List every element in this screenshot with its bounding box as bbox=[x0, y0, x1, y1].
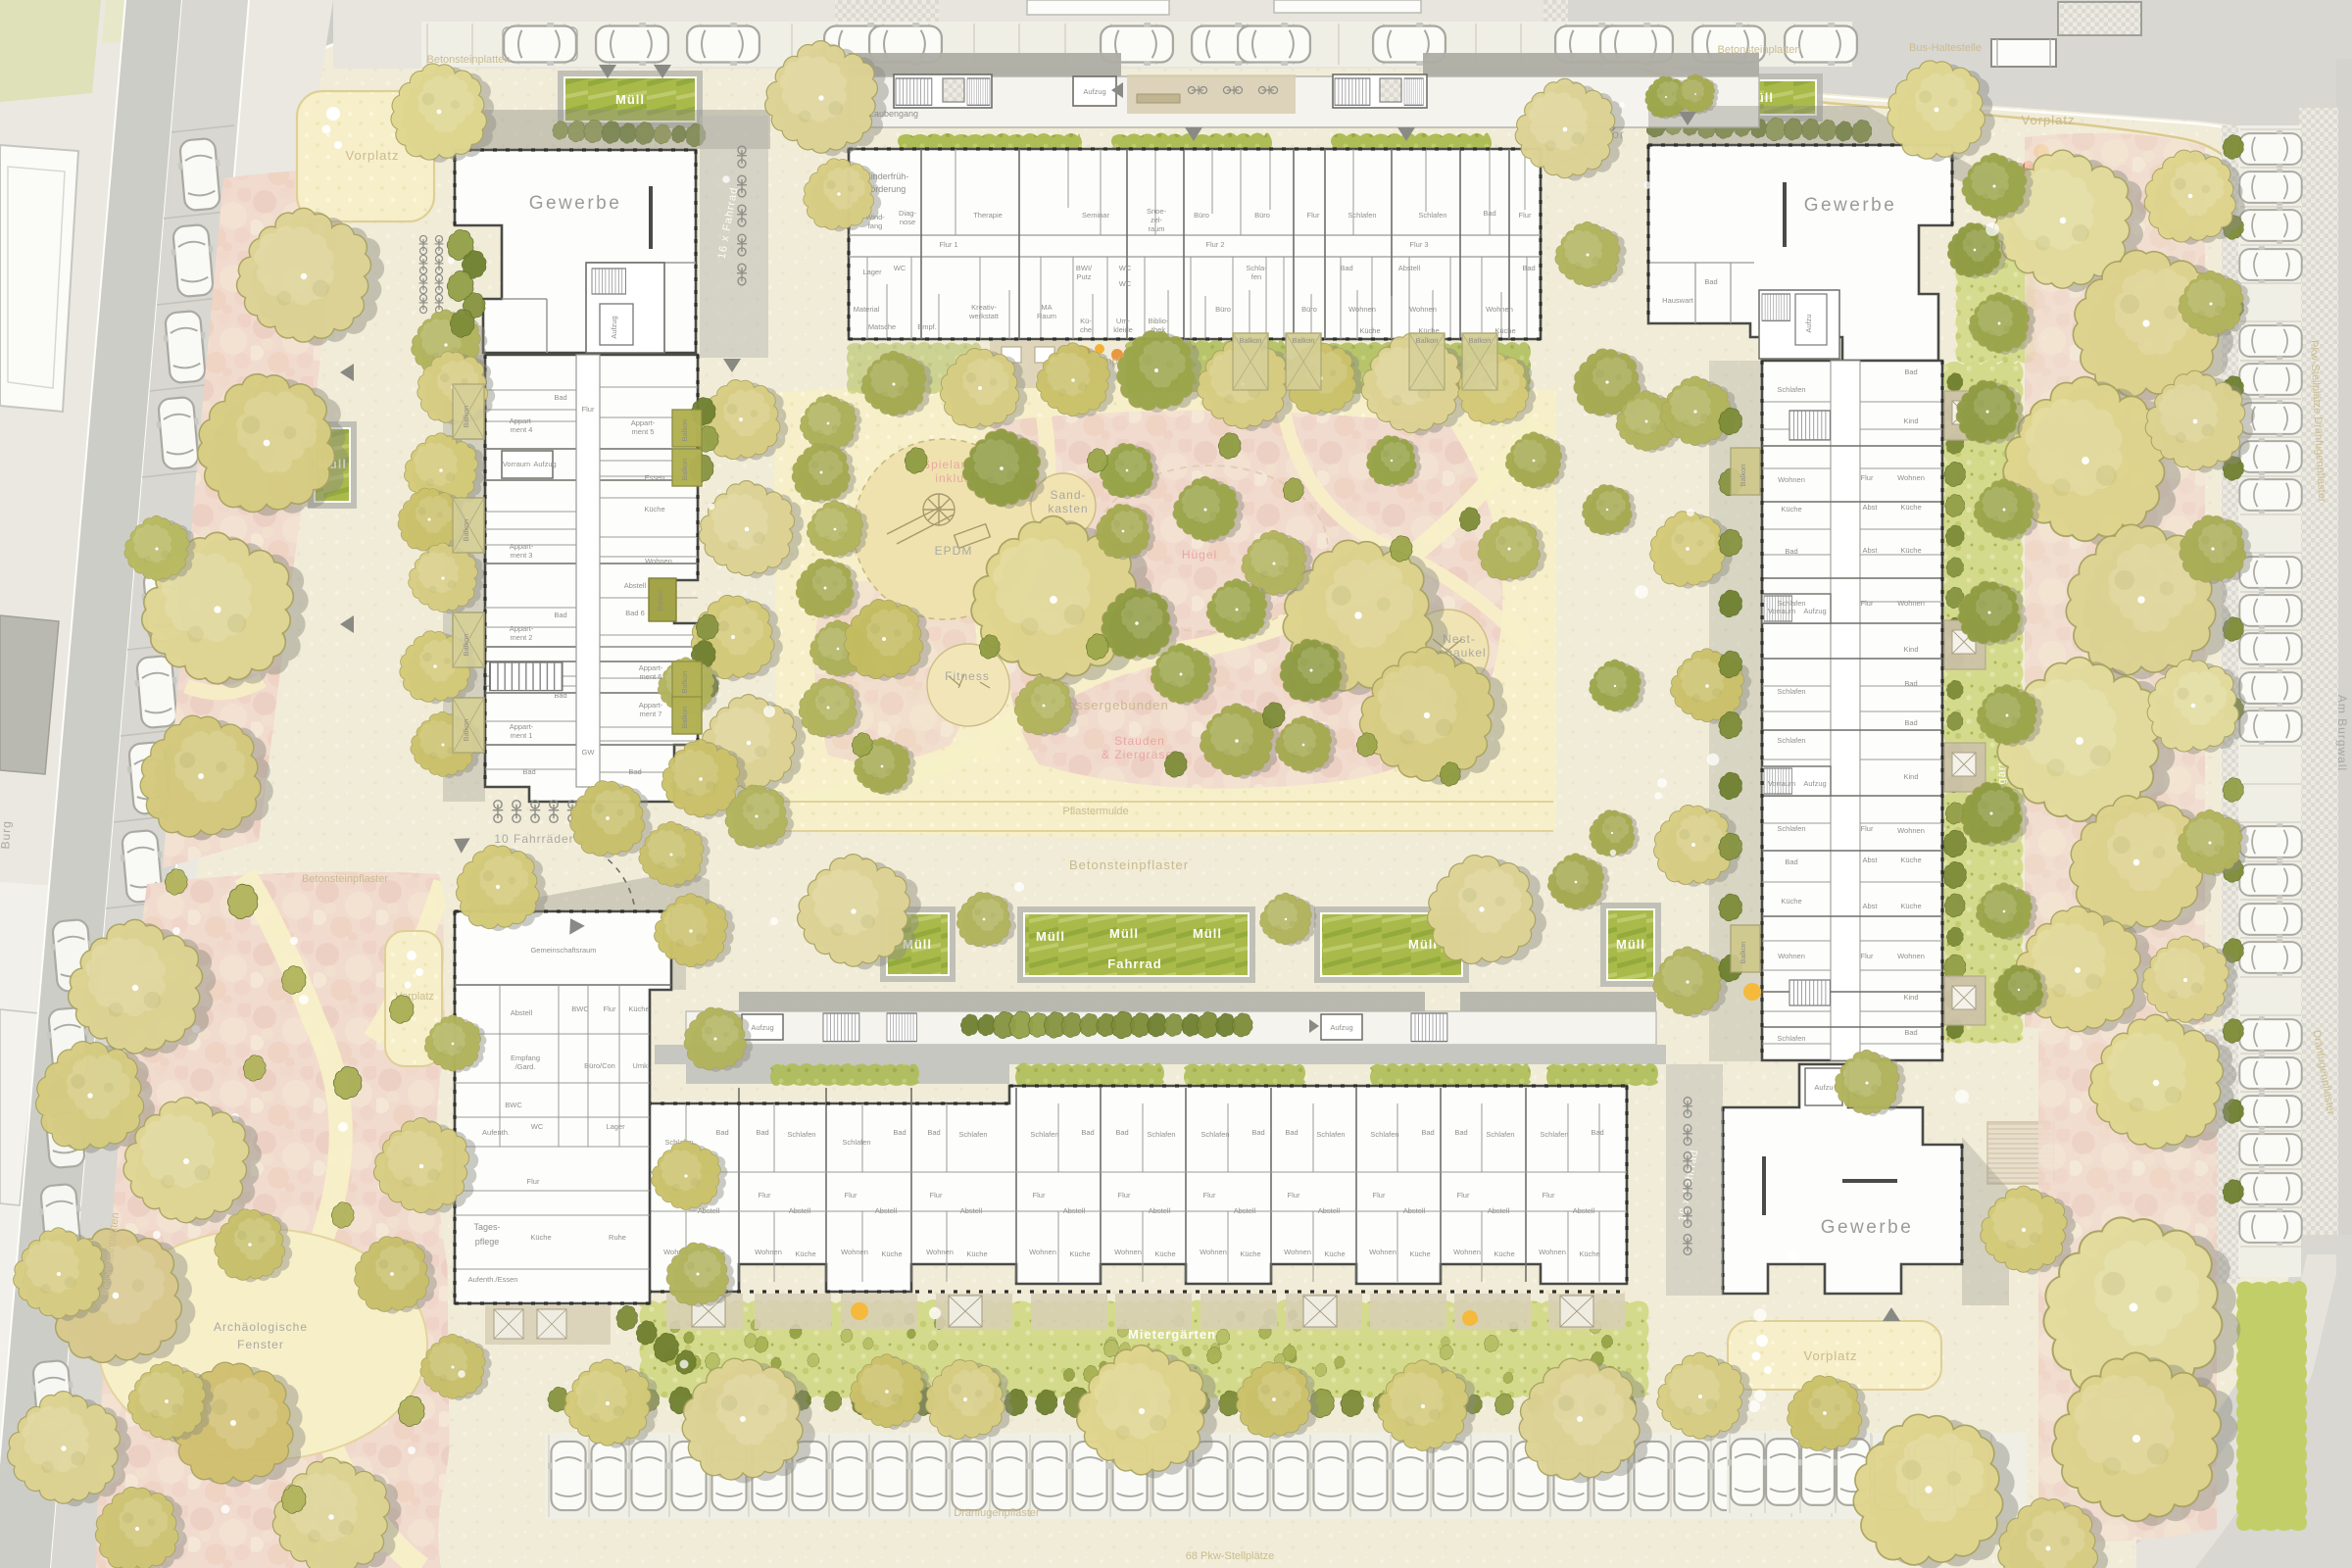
svg-text:Wohnen: Wohnen bbox=[1369, 1248, 1396, 1256]
svg-text:Bad: Bad bbox=[554, 393, 566, 402]
svg-text:Küche: Küche bbox=[1154, 1249, 1175, 1258]
svg-text:Bad: Bad bbox=[1904, 1028, 1917, 1037]
svg-text:Raum: Raum bbox=[1037, 312, 1056, 320]
svg-text:Balkon: Balkon bbox=[1416, 336, 1439, 345]
svg-text:Balkon: Balkon bbox=[656, 589, 664, 612]
svg-text:che: che bbox=[1080, 325, 1092, 334]
svg-text:Schlafen: Schlafen bbox=[958, 1130, 987, 1139]
svg-text:68 Pkw-Stellplätze: 68 Pkw-Stellplätze bbox=[1186, 1550, 1275, 1562]
svg-text:Gewerbe: Gewerbe bbox=[1821, 1217, 1914, 1238]
svg-text:Abstell: Abstell bbox=[960, 1206, 983, 1215]
svg-text:Küche: Küche bbox=[628, 1004, 649, 1013]
svg-text:Schlafen: Schlafen bbox=[1316, 1130, 1345, 1139]
svg-text:Küche: Küche bbox=[1579, 1249, 1599, 1258]
svg-text:Flur: Flur bbox=[1118, 1191, 1131, 1200]
svg-text:Betonsteinpflaster: Betonsteinpflaster bbox=[1069, 857, 1189, 872]
svg-text:Flur: Flur bbox=[759, 1191, 771, 1200]
svg-text:Sand-: Sand- bbox=[1050, 488, 1086, 502]
svg-text:Flur: Flur bbox=[1457, 1191, 1470, 1200]
svg-text:BWC: BWC bbox=[505, 1101, 522, 1109]
svg-text:Flur: Flur bbox=[1861, 952, 1874, 960]
svg-text:Wohnen: Wohnen bbox=[1348, 305, 1376, 314]
svg-text:Flur: Flur bbox=[845, 1191, 857, 1200]
svg-text:fen: fen bbox=[1251, 272, 1261, 281]
svg-text:10 Fahrräder: 10 Fahrräder bbox=[494, 832, 573, 846]
svg-text:Müll: Müll bbox=[615, 92, 645, 107]
svg-text:Bad: Bad bbox=[893, 1128, 906, 1137]
svg-text:/Gard.: /Gard. bbox=[515, 1062, 536, 1071]
svg-text:Flur: Flur bbox=[1519, 211, 1532, 220]
svg-text:Küche: Küche bbox=[644, 505, 664, 514]
svg-text:Wohnen: Wohnen bbox=[1897, 599, 1925, 608]
svg-text:Bad: Bad bbox=[756, 1128, 768, 1137]
svg-text:Bus-Haltestelle: Bus-Haltestelle bbox=[1909, 42, 1982, 54]
svg-text:Küche: Küche bbox=[1781, 897, 1801, 906]
svg-text:Flur: Flur bbox=[1203, 1191, 1216, 1200]
svg-text:Bad: Bad bbox=[554, 611, 566, 619]
svg-text:Balkon: Balkon bbox=[462, 406, 470, 428]
svg-text:Matsche: Matsche bbox=[868, 322, 896, 331]
svg-text:Balkon: Balkon bbox=[462, 719, 470, 742]
svg-text:Gemeinschaftsraum: Gemeinschaftsraum bbox=[530, 946, 596, 955]
svg-text:Wohnen: Wohnen bbox=[1200, 1248, 1227, 1256]
svg-text:ment 1: ment 1 bbox=[511, 731, 533, 740]
svg-text:Bad: Bad bbox=[1483, 209, 1495, 218]
svg-text:Schlafen: Schlafen bbox=[1370, 1130, 1398, 1139]
svg-text:Balkon: Balkon bbox=[462, 634, 470, 657]
svg-text:Kind: Kind bbox=[1903, 416, 1918, 425]
svg-text:Balkon: Balkon bbox=[1739, 465, 1747, 487]
svg-text:Küche: Küche bbox=[1359, 326, 1380, 335]
svg-text:Wohnen: Wohnen bbox=[1897, 952, 1925, 960]
svg-text:Bad: Bad bbox=[554, 691, 566, 700]
svg-text:Lager: Lager bbox=[862, 268, 882, 276]
svg-text:werkstatt: werkstatt bbox=[968, 312, 1000, 320]
svg-text:Flur: Flur bbox=[1861, 473, 1874, 482]
svg-text:Wohnen: Wohnen bbox=[1453, 1248, 1481, 1256]
svg-text:Abstell: Abstell bbox=[1149, 1206, 1171, 1215]
svg-text:Aufenth./Essen: Aufenth./Essen bbox=[468, 1275, 518, 1284]
svg-text:Schlafen: Schlafen bbox=[787, 1130, 815, 1139]
svg-text:Schlafen: Schlafen bbox=[842, 1138, 870, 1147]
svg-text:Abstell: Abstell bbox=[1234, 1206, 1256, 1215]
svg-text:Bad: Bad bbox=[927, 1128, 940, 1137]
svg-text:Burg: Burg bbox=[0, 820, 14, 850]
svg-text:Bad: Bad bbox=[715, 1128, 728, 1137]
svg-text:Büro: Büro bbox=[1301, 305, 1317, 314]
svg-text:Appart-: Appart- bbox=[510, 542, 534, 551]
svg-text:Appart-: Appart- bbox=[510, 624, 534, 633]
svg-text:Betonsteinplatten: Betonsteinplatten bbox=[1717, 44, 1800, 56]
svg-text:ment 2: ment 2 bbox=[511, 633, 533, 642]
svg-text:Wohnen: Wohnen bbox=[1284, 1248, 1311, 1256]
svg-text:Küche: Küche bbox=[1494, 1249, 1514, 1258]
svg-text:Empf.: Empf. bbox=[917, 322, 937, 331]
svg-text:Balkon: Balkon bbox=[680, 707, 689, 729]
svg-text:Fitness: Fitness bbox=[945, 669, 990, 683]
svg-text:Fenster: Fenster bbox=[237, 1338, 284, 1351]
svg-text:Bad: Bad bbox=[1115, 1128, 1128, 1137]
svg-text:Küche: Küche bbox=[1900, 546, 1921, 555]
svg-text:Diag-: Diag- bbox=[899, 209, 916, 218]
svg-text:Kind: Kind bbox=[1903, 993, 1918, 1002]
svg-text:Balkon: Balkon bbox=[462, 519, 470, 542]
svg-text:Vorraum: Vorraum bbox=[1768, 607, 1795, 615]
svg-text:Bad: Bad bbox=[1421, 1128, 1434, 1137]
svg-text:Bad: Bad bbox=[1591, 1128, 1603, 1137]
svg-text:Küche: Küche bbox=[1900, 503, 1921, 512]
svg-text:Therapie: Therapie bbox=[973, 211, 1003, 220]
svg-text:Snoe-: Snoe- bbox=[1147, 207, 1167, 216]
svg-text:Schlafen: Schlafen bbox=[1777, 687, 1805, 696]
svg-text:Abstell: Abstell bbox=[1488, 1206, 1510, 1215]
svg-text:ment 7: ment 7 bbox=[640, 710, 662, 718]
svg-text:Bad: Bad bbox=[1285, 1128, 1298, 1137]
svg-text:Abstell: Abstell bbox=[1398, 264, 1421, 272]
svg-text:Schlafen: Schlafen bbox=[1347, 211, 1376, 220]
svg-text:BWI/: BWI/ bbox=[1076, 264, 1093, 272]
svg-text:ment 5: ment 5 bbox=[632, 427, 655, 436]
svg-text:kasten: kasten bbox=[1048, 502, 1088, 515]
svg-text:Büro: Büro bbox=[1254, 211, 1270, 220]
svg-text:Appart-: Appart- bbox=[510, 416, 534, 425]
svg-text:Schlafen: Schlafen bbox=[1777, 824, 1805, 833]
svg-text:Hauswart: Hauswart bbox=[1662, 296, 1694, 305]
svg-text:Abst: Abst bbox=[1862, 546, 1878, 555]
svg-text:Umkl.: Umkl. bbox=[632, 1061, 651, 1070]
svg-text:Abst: Abst bbox=[1862, 856, 1878, 864]
svg-text:Flur: Flur bbox=[582, 405, 595, 414]
svg-text:Küche: Küche bbox=[795, 1249, 815, 1258]
svg-text:Balkon: Balkon bbox=[680, 671, 689, 694]
svg-text:Aufenth.: Aufenth. bbox=[482, 1128, 510, 1137]
svg-text:WC: WC bbox=[531, 1122, 544, 1131]
svg-text:Putz: Putz bbox=[1076, 272, 1091, 281]
svg-text:Küche: Küche bbox=[1069, 1249, 1090, 1258]
svg-text:EPDM: EPDM bbox=[935, 544, 973, 558]
svg-text:Flur: Flur bbox=[1307, 211, 1320, 220]
svg-text:Müll: Müll bbox=[1109, 926, 1139, 941]
svg-text:kleide: kleide bbox=[1113, 325, 1133, 334]
svg-text:zel-: zel- bbox=[1151, 216, 1163, 224]
svg-text:Flur: Flur bbox=[1861, 599, 1874, 608]
svg-text:Büro: Büro bbox=[1215, 305, 1231, 314]
svg-text:Flur: Flur bbox=[1861, 824, 1874, 833]
svg-text:Bad: Bad bbox=[1904, 679, 1917, 688]
svg-text:Kü-: Kü- bbox=[1080, 317, 1092, 325]
svg-text:Küche: Küche bbox=[966, 1249, 987, 1258]
svg-text:Balkon: Balkon bbox=[1240, 336, 1262, 345]
svg-text:Abstell: Abstell bbox=[624, 581, 647, 590]
svg-text:Bad: Bad bbox=[1081, 1128, 1094, 1137]
svg-text:ment 6: ment 6 bbox=[640, 672, 662, 681]
svg-text:Vorraum: Vorraum bbox=[1768, 779, 1795, 788]
svg-text:Bad: Bad bbox=[1251, 1128, 1264, 1137]
svg-text:fang: fang bbox=[868, 221, 883, 230]
svg-text:Aufzu: Aufzu bbox=[1814, 1083, 1833, 1092]
svg-text:Flur: Flur bbox=[1543, 1191, 1555, 1200]
svg-text:Aufzug: Aufzug bbox=[1803, 779, 1826, 788]
svg-text:WC: WC bbox=[1119, 279, 1132, 288]
svg-text:Wohnen: Wohnen bbox=[1486, 305, 1513, 314]
svg-text:Abst: Abst bbox=[1862, 902, 1878, 910]
svg-text:ment 4: ment 4 bbox=[511, 425, 533, 434]
svg-text:Pflastermulde: Pflastermulde bbox=[1062, 806, 1128, 817]
svg-text:Bad: Bad bbox=[1785, 547, 1797, 556]
svg-text:Biblio-: Biblio- bbox=[1149, 317, 1169, 325]
svg-text:Empfang: Empfang bbox=[511, 1053, 540, 1062]
svg-text:Bad 6: Bad 6 bbox=[625, 609, 645, 617]
svg-text:Dränfugenpflaster: Dränfugenpflaster bbox=[954, 1507, 1040, 1519]
svg-text:Kind: Kind bbox=[1903, 772, 1918, 781]
svg-text:Hügel: Hügel bbox=[1182, 548, 1217, 562]
svg-text:Wohnen: Wohnen bbox=[1897, 826, 1925, 835]
svg-text:Bad: Bad bbox=[1785, 857, 1797, 866]
svg-text:Flur: Flur bbox=[604, 1004, 616, 1013]
svg-text:Wohnen: Wohnen bbox=[1029, 1248, 1056, 1256]
svg-text:Wohnen: Wohnen bbox=[841, 1248, 868, 1256]
svg-text:pflege: pflege bbox=[475, 1237, 500, 1247]
svg-text:Gewerbe: Gewerbe bbox=[529, 193, 622, 214]
svg-text:Balkon: Balkon bbox=[1469, 336, 1492, 345]
svg-text:Aufzug: Aufzug bbox=[1330, 1023, 1352, 1032]
svg-text:MA: MA bbox=[1041, 303, 1052, 312]
svg-text:nose: nose bbox=[900, 218, 915, 226]
svg-text:Schlafen: Schlafen bbox=[1030, 1130, 1058, 1139]
svg-text:Aufzug: Aufzug bbox=[1083, 87, 1105, 96]
svg-text:Schlafen: Schlafen bbox=[1777, 736, 1805, 745]
svg-text:Schlafen: Schlafen bbox=[1147, 1130, 1175, 1139]
svg-text:Flur: Flur bbox=[930, 1191, 943, 1200]
svg-text:Müll: Müll bbox=[1193, 926, 1222, 941]
svg-text:GW: GW bbox=[582, 748, 596, 757]
svg-text:Tages-: Tages- bbox=[473, 1222, 500, 1232]
svg-text:Wohnen: Wohnen bbox=[1778, 475, 1805, 484]
svg-text:Schlafen: Schlafen bbox=[1486, 1130, 1514, 1139]
svg-text:BWC: BWC bbox=[571, 1004, 589, 1013]
svg-text:Wohnen: Wohnen bbox=[1114, 1248, 1142, 1256]
svg-text:Betonsteinpflaster: Betonsteinpflaster bbox=[302, 873, 388, 885]
svg-text:Gewerbe: Gewerbe bbox=[1804, 195, 1897, 216]
svg-text:Bad: Bad bbox=[1522, 264, 1535, 272]
svg-text:Flur 1: Flur 1 bbox=[939, 240, 957, 249]
svg-text:Küche: Küche bbox=[881, 1249, 902, 1258]
svg-text:Aufzug: Aufzug bbox=[751, 1023, 773, 1032]
svg-text:Büro/Con: Büro/Con bbox=[584, 1061, 615, 1070]
svg-text:Küche: Küche bbox=[1900, 902, 1921, 910]
svg-text:Betonsteinplatten: Betonsteinplatten bbox=[426, 54, 510, 66]
svg-text:Fahrrad: Fahrrad bbox=[1107, 956, 1161, 971]
svg-text:Wohnen: Wohnen bbox=[645, 557, 672, 565]
svg-text:Schlafen: Schlafen bbox=[1418, 211, 1446, 220]
svg-text:Büro: Büro bbox=[1194, 211, 1209, 220]
svg-text:Schla-: Schla- bbox=[1246, 264, 1267, 272]
svg-text:Kreativ-: Kreativ- bbox=[971, 303, 997, 312]
svg-text:Appart-: Appart- bbox=[639, 701, 663, 710]
svg-text:Flur 2: Flur 2 bbox=[1205, 240, 1224, 249]
svg-text:Küche: Küche bbox=[1240, 1249, 1260, 1258]
svg-text:Balkon: Balkon bbox=[680, 419, 689, 442]
svg-text:raum: raum bbox=[1148, 224, 1164, 233]
svg-text:Wohnen: Wohnen bbox=[1409, 305, 1437, 314]
svg-text:Balkon: Balkon bbox=[1739, 942, 1747, 964]
svg-text:Müll: Müll bbox=[1036, 929, 1065, 944]
svg-text:Abst: Abst bbox=[1862, 503, 1878, 512]
svg-text:Abstell: Abstell bbox=[789, 1206, 811, 1215]
svg-text:Balkon: Balkon bbox=[1293, 336, 1315, 345]
svg-text:Aufzug: Aufzug bbox=[533, 460, 556, 468]
svg-text:Abstell: Abstell bbox=[1318, 1206, 1341, 1215]
svg-text:Küche: Küche bbox=[530, 1233, 551, 1242]
svg-text:Schlafen: Schlafen bbox=[1540, 1130, 1568, 1139]
svg-text:Küche: Küche bbox=[1324, 1249, 1345, 1258]
svg-text:WC: WC bbox=[894, 264, 906, 272]
svg-text:Stauden: Stauden bbox=[1114, 734, 1165, 748]
svg-text:Flur: Flur bbox=[1288, 1191, 1300, 1200]
svg-text:Vorraum: Vorraum bbox=[503, 460, 530, 468]
svg-text:Abstell: Abstell bbox=[511, 1008, 533, 1017]
svg-text:Schlafen: Schlafen bbox=[1777, 1034, 1805, 1043]
svg-text:Appart-: Appart- bbox=[639, 663, 663, 672]
svg-text:Kind: Kind bbox=[1903, 645, 1918, 654]
svg-text:Vorplatz: Vorplatz bbox=[2022, 113, 2076, 127]
svg-text:Appart-: Appart- bbox=[631, 418, 656, 427]
svg-text:Archäologische: Archäologische bbox=[214, 1320, 308, 1334]
svg-text:Küche: Küche bbox=[1781, 505, 1801, 514]
svg-text:Flur 3: Flur 3 bbox=[1409, 240, 1428, 249]
svg-text:Am Burgwall: Am Burgwall bbox=[2335, 695, 2349, 771]
svg-text:Flur: Flur bbox=[1033, 1191, 1046, 1200]
svg-text:Schlafen: Schlafen bbox=[1200, 1130, 1229, 1139]
svg-text:Lager: Lager bbox=[606, 1122, 625, 1131]
svg-text:Abstell: Abstell bbox=[1403, 1206, 1426, 1215]
svg-text:Aufzug: Aufzug bbox=[1803, 607, 1826, 615]
svg-text:Bad: Bad bbox=[1454, 1128, 1467, 1137]
svg-text:Ruhe: Ruhe bbox=[609, 1233, 626, 1242]
svg-text:Bad: Bad bbox=[1904, 718, 1917, 727]
svg-text:Um-: Um- bbox=[1116, 317, 1131, 325]
svg-text:Abstell: Abstell bbox=[1573, 1206, 1595, 1215]
svg-text:Schlafen: Schlafen bbox=[1777, 599, 1805, 608]
svg-text:Müll: Müll bbox=[1616, 937, 1645, 952]
svg-text:Material: Material bbox=[854, 305, 880, 314]
svg-text:Vorplatz: Vorplatz bbox=[346, 148, 400, 163]
svg-text:Wohnen: Wohnen bbox=[755, 1248, 782, 1256]
svg-text:Vorplatz: Vorplatz bbox=[1804, 1348, 1858, 1363]
svg-text:ment 3: ment 3 bbox=[511, 551, 533, 560]
svg-text:Wohnen: Wohnen bbox=[1778, 952, 1805, 960]
svg-text:Flur: Flur bbox=[1373, 1191, 1386, 1200]
svg-text:Küche: Küche bbox=[1900, 856, 1921, 864]
svg-text:Seminar: Seminar bbox=[1082, 211, 1109, 220]
svg-text:Wohnen: Wohnen bbox=[1539, 1248, 1566, 1256]
svg-text:Küche: Küche bbox=[1409, 1249, 1430, 1258]
svg-text:Flur: Flur bbox=[527, 1177, 540, 1186]
svg-text:Bad: Bad bbox=[1340, 264, 1352, 272]
svg-text:Bad: Bad bbox=[1704, 277, 1717, 286]
svg-text:WC: WC bbox=[1119, 264, 1132, 272]
svg-text:Abstell: Abstell bbox=[1063, 1206, 1086, 1215]
svg-text:Bad: Bad bbox=[628, 767, 641, 776]
svg-text:Mietergärten: Mietergärten bbox=[1128, 1327, 1216, 1342]
svg-text:Bad: Bad bbox=[522, 767, 535, 776]
svg-text:Abstell: Abstell bbox=[875, 1206, 898, 1215]
svg-text:Appart-: Appart- bbox=[510, 722, 534, 731]
svg-text:Wohnen: Wohnen bbox=[926, 1248, 954, 1256]
svg-text:Schlafen: Schlafen bbox=[1777, 385, 1805, 394]
svg-text:Essen: Essen bbox=[645, 473, 665, 482]
svg-text:Wohnen: Wohnen bbox=[1897, 473, 1925, 482]
svg-text:Bad: Bad bbox=[1904, 367, 1917, 376]
svg-text:Balkon: Balkon bbox=[680, 459, 689, 481]
svg-text:Aufzu: Aufzu bbox=[1804, 314, 1813, 332]
